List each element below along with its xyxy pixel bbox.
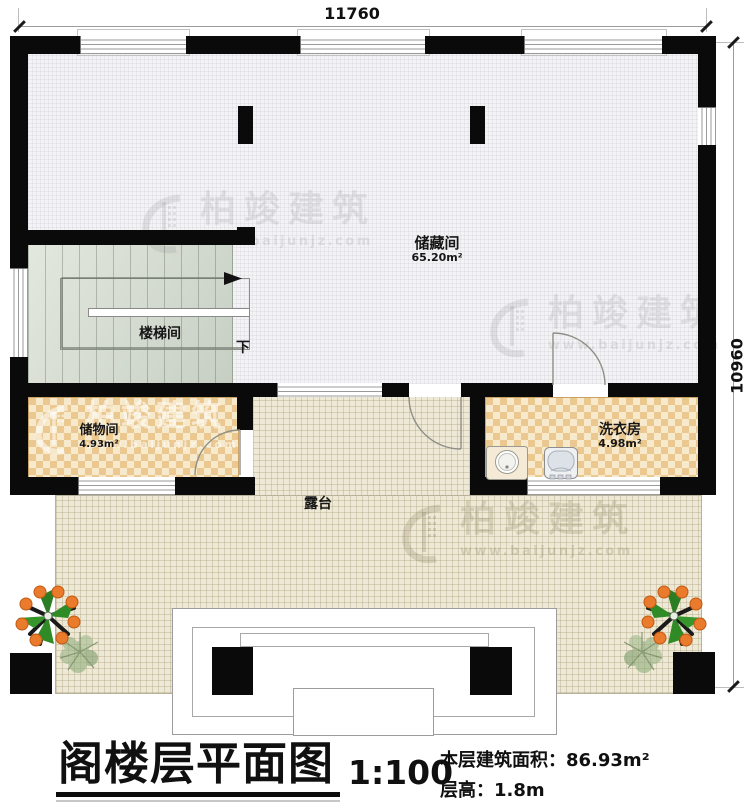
title-underline-thick bbox=[56, 792, 340, 797]
column bbox=[470, 106, 485, 144]
window bbox=[527, 477, 662, 495]
window bbox=[698, 107, 716, 147]
room-area: 4.98m² bbox=[598, 438, 641, 451]
room-label-storage-large: 储藏间 65.20m² bbox=[411, 235, 462, 265]
drawing-info: 本层建筑面积：86.93m² 层高：1.8m bbox=[440, 746, 650, 805]
wall-segment bbox=[382, 383, 409, 397]
wall-segment bbox=[470, 477, 527, 495]
room-name: 储藏间 bbox=[411, 235, 462, 252]
wall-segment bbox=[660, 477, 716, 495]
column bbox=[238, 106, 253, 144]
room-name: 洗衣房 bbox=[598, 422, 641, 438]
drawing-scale: 1:100 bbox=[348, 753, 453, 792]
floor-height-label: 层高： bbox=[440, 780, 494, 801]
column bbox=[10, 653, 52, 694]
window bbox=[277, 383, 384, 397]
floor-area-line: 本层建筑面积：86.93m² bbox=[440, 746, 650, 776]
room-label-stairwell: 楼梯间 bbox=[139, 326, 181, 342]
column bbox=[470, 647, 512, 695]
room-area: 65.20m² bbox=[411, 252, 462, 265]
window bbox=[524, 36, 664, 54]
wall-segment bbox=[698, 145, 716, 495]
steps-landing bbox=[293, 688, 434, 736]
title-underline-thin bbox=[56, 800, 340, 802]
wall-segment bbox=[608, 383, 716, 397]
room-label-laundry: 洗衣房 4.98m² bbox=[598, 422, 641, 451]
room-name: 储物间 bbox=[79, 424, 118, 439]
drawing-title: 阁楼层平面图 bbox=[58, 741, 334, 786]
wall-segment bbox=[698, 36, 716, 107]
window bbox=[10, 268, 28, 359]
stair-down-label: 下 bbox=[236, 340, 250, 356]
window bbox=[80, 36, 188, 54]
wall-segment bbox=[237, 227, 255, 245]
wall-segment bbox=[237, 383, 253, 430]
floor-area-label: 本层建筑面积： bbox=[440, 750, 566, 771]
wall-segment bbox=[186, 36, 300, 54]
floor-height-value: 1.8m bbox=[494, 780, 545, 801]
dimension-line-top bbox=[19, 26, 707, 27]
terrace-corridor-floor bbox=[253, 397, 471, 497]
floor-height-line: 层高：1.8m bbox=[440, 776, 650, 806]
wall-segment bbox=[175, 477, 255, 495]
wall-segment bbox=[425, 36, 524, 54]
dimension-right-value: 10960 bbox=[728, 338, 747, 394]
column bbox=[673, 652, 715, 694]
room-label-storage-small: 储物间 4.93m² bbox=[79, 424, 118, 450]
room-storage-small-floor bbox=[28, 397, 239, 479]
wall-segment bbox=[10, 477, 78, 495]
room-laundry-floor bbox=[485, 397, 700, 479]
steps-outline-inner bbox=[240, 633, 489, 647]
window bbox=[78, 477, 177, 495]
stair-handrail bbox=[88, 308, 250, 317]
wall-segment bbox=[483, 383, 553, 397]
column bbox=[212, 647, 253, 695]
room-label-terrace: 露台 bbox=[304, 496, 332, 512]
room-area: 4.93m² bbox=[79, 439, 118, 451]
floor-plan-attic: 11760 10960 柏竣建筑 www.baijunjz.com 柏竣建筑 w… bbox=[0, 0, 750, 811]
floor-area-value: 86.93m² bbox=[566, 750, 650, 771]
dimension-top-value: 11760 bbox=[324, 4, 380, 23]
wall-segment bbox=[10, 357, 28, 495]
wall-segment bbox=[10, 230, 255, 245]
window bbox=[300, 36, 427, 54]
